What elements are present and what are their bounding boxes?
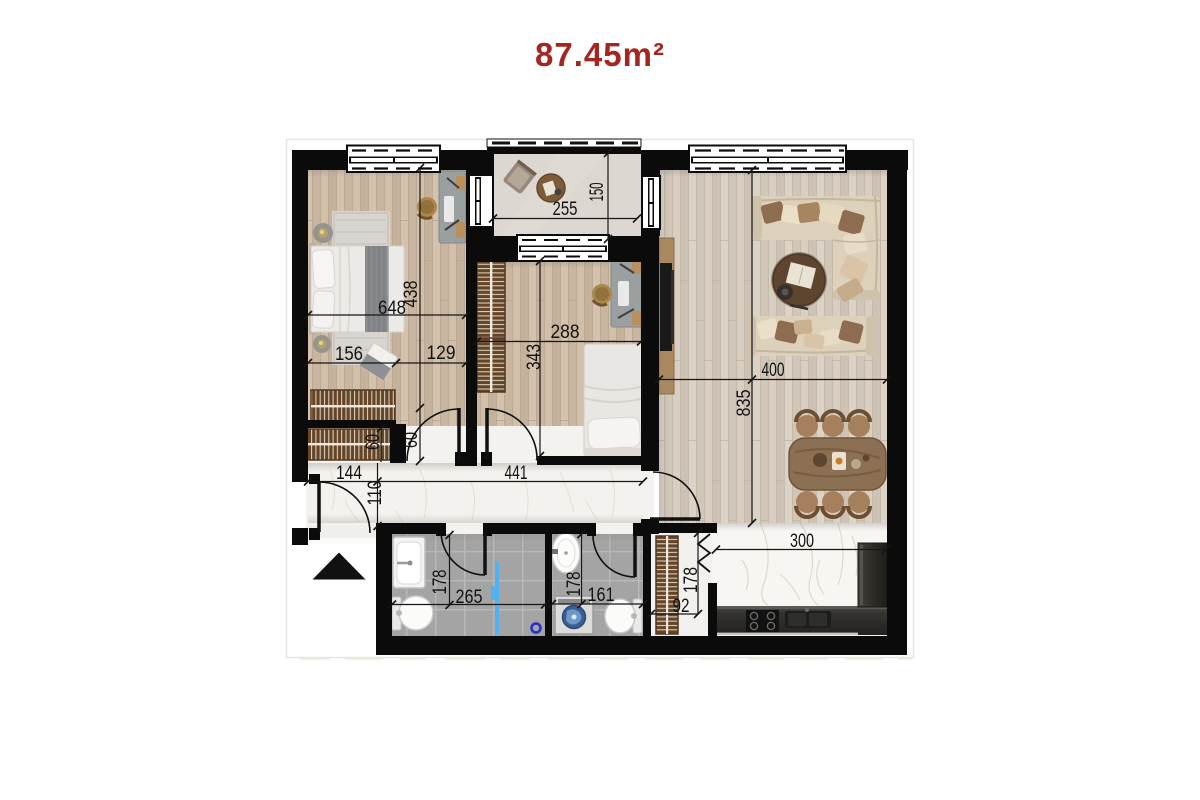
svg-text:178: 178 bbox=[681, 567, 702, 593]
svg-text:178: 178 bbox=[430, 570, 451, 595]
svg-text:265: 265 bbox=[456, 587, 483, 608]
svg-text:60: 60 bbox=[401, 432, 422, 448]
svg-text:156: 156 bbox=[335, 344, 363, 365]
svg-text:161: 161 bbox=[588, 585, 615, 606]
svg-text:288: 288 bbox=[551, 322, 580, 343]
svg-text:343: 343 bbox=[524, 344, 545, 370]
svg-text:150: 150 bbox=[587, 183, 608, 202]
svg-text:87.45m²: 87.45m² bbox=[535, 36, 665, 73]
svg-text:129: 129 bbox=[427, 343, 456, 364]
svg-text:441: 441 bbox=[505, 463, 528, 484]
svg-text:92: 92 bbox=[673, 596, 690, 617]
svg-text:835: 835 bbox=[734, 390, 755, 417]
svg-text:400: 400 bbox=[762, 360, 785, 381]
svg-text:178: 178 bbox=[564, 572, 585, 597]
svg-text:144: 144 bbox=[336, 463, 362, 484]
svg-text:438: 438 bbox=[401, 281, 422, 308]
svg-text:300: 300 bbox=[790, 531, 814, 552]
svg-text:60: 60 bbox=[363, 434, 384, 450]
svg-text:255: 255 bbox=[553, 199, 578, 220]
svg-text:110: 110 bbox=[365, 481, 386, 506]
